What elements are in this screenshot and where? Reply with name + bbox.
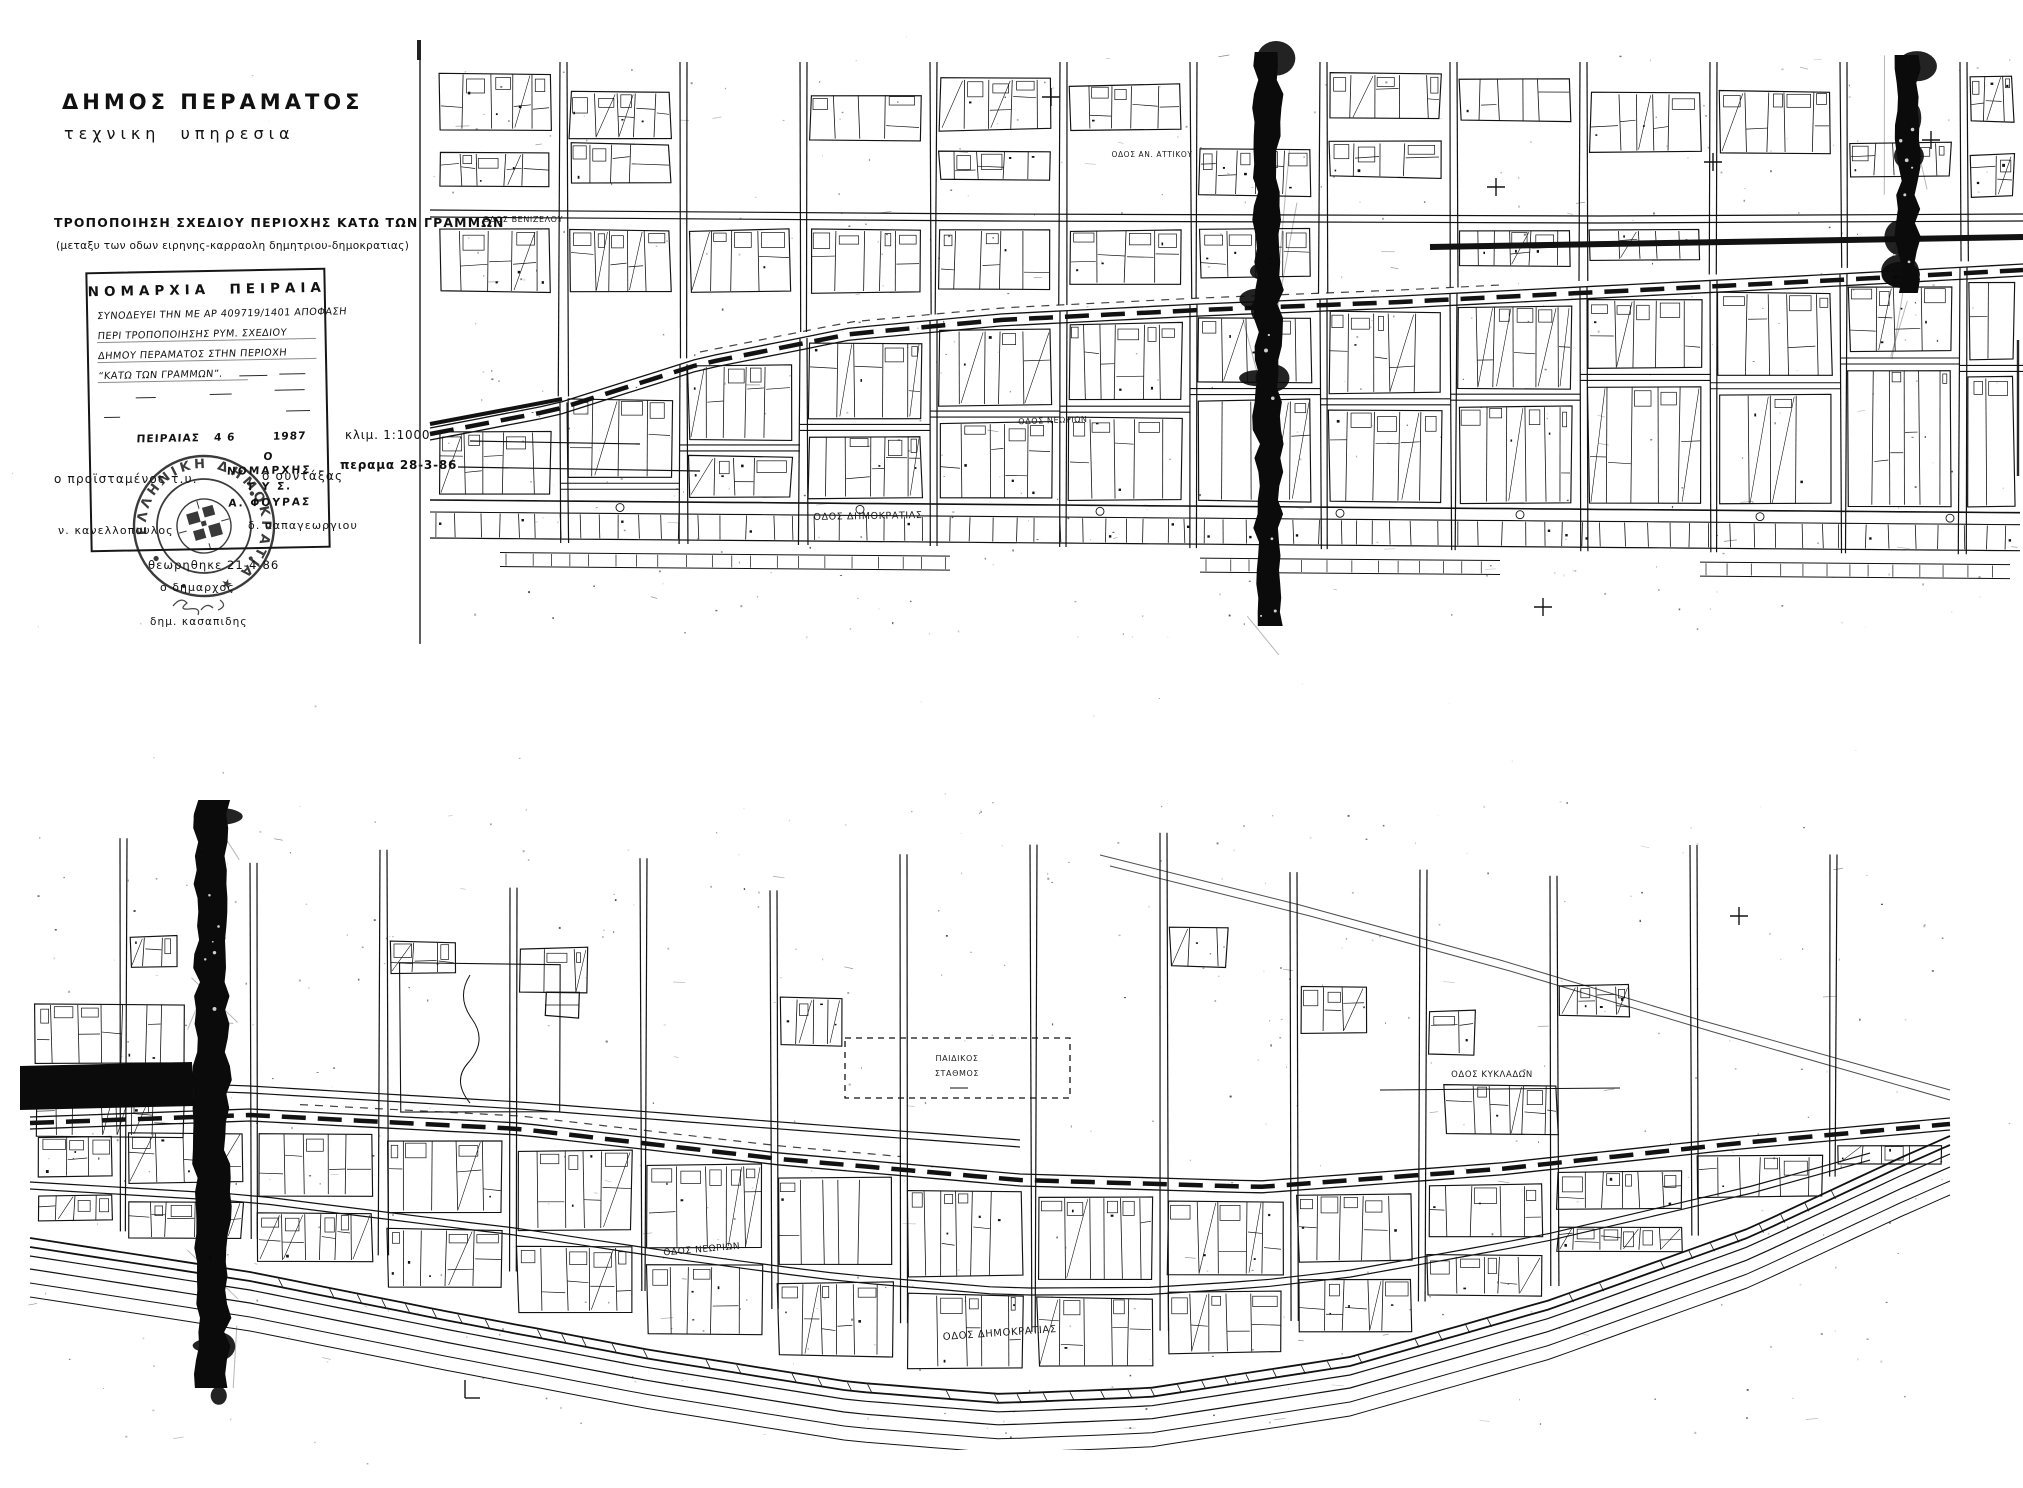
- street-label: ΟΔΟΣ ΝΕΩΡΙΩΝ: [1018, 415, 1088, 426]
- department-subtitle: τεχνικη υπηρεσια: [64, 124, 295, 143]
- filler-dash: [275, 389, 305, 391]
- stamp-emblem: [186, 504, 223, 542]
- supervisor-role: ο προϊσταμένος τ.υ.: [54, 472, 198, 486]
- street-label: ΟΔΟΣ ΑΝ. ΑΤΤΙΚΟΥ: [1111, 150, 1192, 159]
- filler-dash: [104, 417, 120, 418]
- filler-dash: [286, 410, 310, 411]
- railway-boundary-layer: [430, 270, 2023, 434]
- streets-layer: [30, 833, 1950, 1450]
- scanned-plan-sheet: { "header": { "municipality": "ΔΗΜΟΣ ΠΕΡ…: [0, 0, 2023, 1488]
- filler-dash: [136, 397, 156, 398]
- drafter-name: δ. παπαγεωργιου: [248, 519, 358, 532]
- filler-dash: [279, 373, 305, 374]
- street-label: ΠΑΙΔΙΚΟΣ: [935, 1054, 978, 1063]
- filler-dash: [239, 375, 267, 377]
- approval-line-1: ΣΥΝΟΔΕΥΕΙ ΤΗΝ ΜΕ ΑΡ 409719/1401 ΑΠΟΦΑΣΗ: [97, 307, 317, 322]
- city-blocks-layer: [35, 927, 1942, 1368]
- plan-subtitle: (μεταξυ των οδων ειρηνης-καρραολη δημητρ…: [56, 240, 409, 252]
- approval-line-3: ΔΗΜΟΥ ΠΕΡΑΜΑΤΟΣ ΣΤΗΝ ΠΕΡΙΟΧΗ: [97, 347, 317, 363]
- filler-dash: [210, 394, 232, 395]
- supervisor-name: ν. κανελλοπουλος: [58, 524, 174, 537]
- street-label: ΟΔΟΣ ΒΕΝΙΖΕΛΟΥ: [483, 215, 563, 224]
- mayor-name: δημ. κασαπιδης: [150, 616, 248, 628]
- drafter-role: ο συντάξας: [262, 469, 343, 483]
- street-label: ΣΤΑΘΜΟΣ: [935, 1069, 979, 1078]
- approval-line-2: ΠΕΡΙ ΤΡΟΠΟΠΟΙΗΣΗΣ ΡΥΜ. ΣΧΕΔΙΟΥ: [97, 327, 317, 343]
- street-label: ΟΔΟΣ ΚΥΚΛΑΔΩΝ: [1451, 1070, 1533, 1080]
- street-label: ΟΔΟΣ ΔΗΜΟΚΡΑΤΙΑΣ: [942, 1324, 1057, 1343]
- reviewed-date: θεωρηθηκε 21-4-86: [148, 558, 279, 572]
- top-plan-map: ΟΔΟΣ ΒΕΝΙΖΕΛΟΥΟΔΟΣ ΑΝ. ΑΤΤΙΚΟΥΟΔΟΣ ΝΕΩΡΙ…: [410, 40, 2023, 655]
- approval-line-4: “ΚΑΤΩ ΤΩΝ ΓΡΑΜΜΩΝ”.: [98, 368, 249, 383]
- mayor-signature-scribble: [165, 592, 255, 618]
- municipality-title: ΔΗΜΟΣ ΠΕΡΑΜΑΤΟΣ: [62, 90, 363, 114]
- street-label: ΟΔΟΣ ΔΗΜΟΚΡΑΤΙΑΣ: [813, 510, 922, 523]
- street-labels: ΟΔΟΣ ΚΥΚΛΑΔΩΝΠΑΙΔΙΚΟΣΣΤΑΘΜΟΣΟΔΟΣ ΝΕΩΡΙΩΝ…: [663, 1054, 1533, 1343]
- prefecture-name: ΝΟΜΑΡΧΙΑ ΠΕΙΡΑΙΑ: [88, 280, 324, 301]
- bottom-plan-map: ΟΔΟΣ ΚΥΚΛΑΔΩΝΠΑΙΔΙΚΟΣΣΤΑΘΜΟΣΟΔΟΣ ΝΕΩΡΙΩΝ…: [15, 785, 1970, 1450]
